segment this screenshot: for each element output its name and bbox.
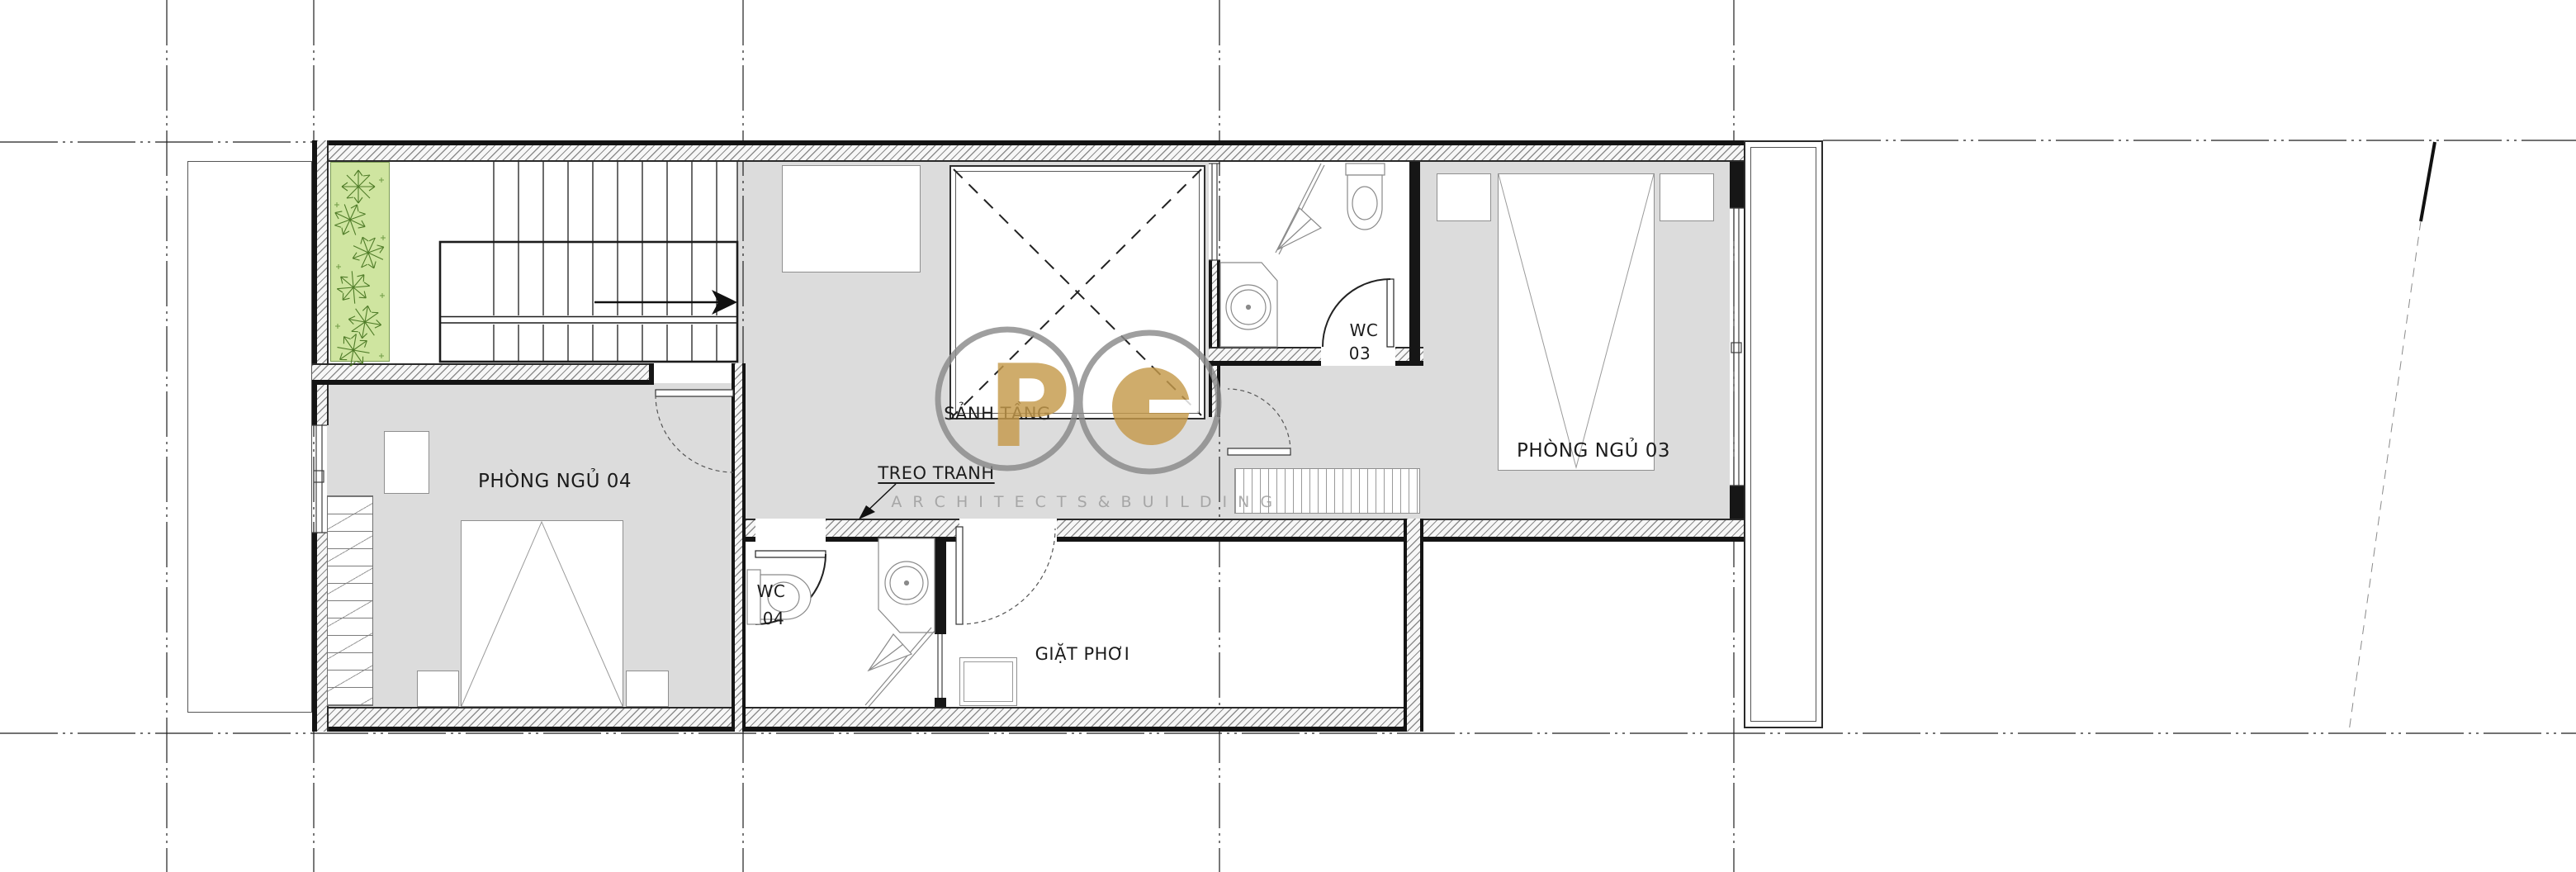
- logo-letter-p: P: [987, 340, 1071, 473]
- company-watermark: P A R C H I T E C T S & B U I L D I N G: [0, 0, 2576, 872]
- logo-letter-c: [1112, 367, 1199, 445]
- logo-subtitle: A R C H I T E C T S & B U I L D I N G: [891, 493, 1275, 511]
- floor-plan-canvas: PHÒNG NGỦ 04 PHÒNG NGỦ 03 SẢNH TẦNG GIẶT…: [0, 0, 2576, 872]
